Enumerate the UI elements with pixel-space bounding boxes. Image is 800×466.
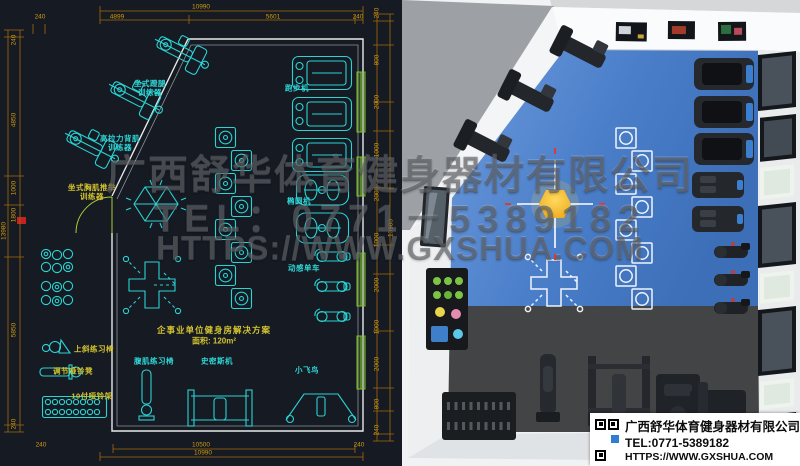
dim-right-240b: 240 [374,425,381,436]
treadmill-symbol [293,139,352,172]
label-lat-pulldown: 高拉力背肌 训练器 [100,134,140,152]
label-incline-bench: 上斜练习椅 [74,345,114,354]
stepper-3d [692,172,744,198]
dumbbell-cabinet [426,268,468,350]
weight-plate-symbol [232,197,252,217]
label-adjustable-bench: 调节哑铃凳 [53,367,93,376]
dim-bottom-10990: 10990 [194,450,212,457]
weight-plate-symbol [232,289,252,309]
weight-plate-symbol [216,220,236,240]
dim-left-1000: 1000 [11,181,18,195]
dim-top-5601: 5601 [266,14,280,21]
dim-left-5850: 5850 [11,323,18,337]
dim-left-240b: 240 [11,419,18,430]
pec-fly-symbol [286,394,356,423]
label-seated-leg-press: 坐式蹬腿 训练器 [134,79,166,97]
treadmill-symbol [293,98,352,131]
light-symbol [126,180,186,228]
wall-mirror [420,186,450,248]
dim-bottom-240r: 240 [354,442,365,449]
dim-right-2000c: 2000 [374,278,381,292]
dim-right-1000c: 1000 [374,320,381,334]
qr-code [594,418,620,462]
dim-right-total: 13980 [388,219,395,237]
dim-bottom-10500: 10500 [192,442,210,449]
multi-station-symbol [123,256,180,313]
dumbbell-rack-3d [442,392,516,440]
label-smith-machine: 史密斯机 [201,357,233,366]
dim-left-4850: 4850 [11,113,18,127]
label-abs-bench: 腹肌练习椅 [134,357,174,366]
dim-top-240r: 240 [353,14,364,21]
dim-top-240l: 240 [35,14,46,21]
plan-title: 企事业单位健身房解决方案 [157,324,271,336]
treadmill-3d [694,96,754,128]
dimension-lines [4,6,394,461]
dim-bottom-240l: 240 [36,442,47,449]
dim-right-2000d: 2000 [374,357,381,371]
gym-design-sheet: 坐式蹬腿 训练器 高拉力背肌 训练器 坐式胸肌推举 训练器 跑步机 椭圆机 动感… [0,0,800,466]
dim-right-2000a: 2000 [374,95,381,109]
dim-right-2000b: 2000 [374,187,381,201]
door-swing-arc [76,197,112,233]
treadmill-3d [694,58,754,90]
abs-bench-symbol [139,370,154,420]
render-3d: 广西舒华体育健身器材有限公司 TEL:0771-5389182 HTTPS://… [402,0,800,466]
weight-plate-symbol [216,128,236,148]
phone-number: TEL:0771-5389182 [625,436,800,450]
dim-left-total: 13980 [1,222,8,240]
dim-top-4899: 4899 [110,14,124,21]
dim-right-1000b: 1000 [374,233,381,247]
stepper-3d [692,206,744,232]
label-spin-bike: 动感单车 [288,264,320,273]
spin-bike-symbol [315,249,350,262]
weight-plate-symbol [216,174,236,194]
dim-right-800a: 800 [374,55,381,66]
dim-right-1000a: 1000 [374,143,381,157]
dim-top-total: 10990 [192,4,210,11]
company-name: 广西舒华体育健身器材有限公司 [625,416,800,435]
floorplan-drawing [0,0,402,466]
weight-plate-symbol [232,151,252,171]
dim-left-240a: 240 [11,35,18,46]
door-marker [17,217,26,224]
label-chest-press: 坐式胸肌推举 训练器 [68,183,116,201]
weight-plate-symbol [216,266,236,286]
dim-right-240a: 240 [374,8,381,19]
label-pec-fly: 小飞鸟 [295,366,319,375]
spin-bike-symbol [315,309,350,322]
label-elliptical: 椭圆机 [287,197,311,206]
cad-floorplan: 坐式蹬腿 训练器 高拉力背肌 训练器 坐式胸肌推举 训练器 跑步机 椭圆机 动感… [0,0,402,466]
elliptical-symbol [297,213,349,243]
label-treadmill: 跑步机 [285,84,309,93]
wall-posters [616,21,746,42]
dim-left-1800: 1800 [11,208,18,222]
treadmill-3d [694,133,754,165]
incline-bench-symbol [42,340,70,353]
dumbbell-cluster-symbol [41,249,72,305]
contact-card: 广西舒华体育健身器材有限公司 TEL:0771-5389182 HTTPS://… [590,413,800,466]
render-drawing [402,0,800,466]
website-url: HTTPS://WWW.GXSHUA.COM [625,451,800,463]
label-dumbbell-rack: 10付哑铃架 [71,392,112,401]
smith-machine-symbol [188,390,252,426]
spin-bike-symbol [315,279,350,292]
weight-plate-symbol [232,243,252,263]
plan-area: 面积: 120m² [192,336,236,347]
dim-right-800b: 800 [374,399,381,410]
